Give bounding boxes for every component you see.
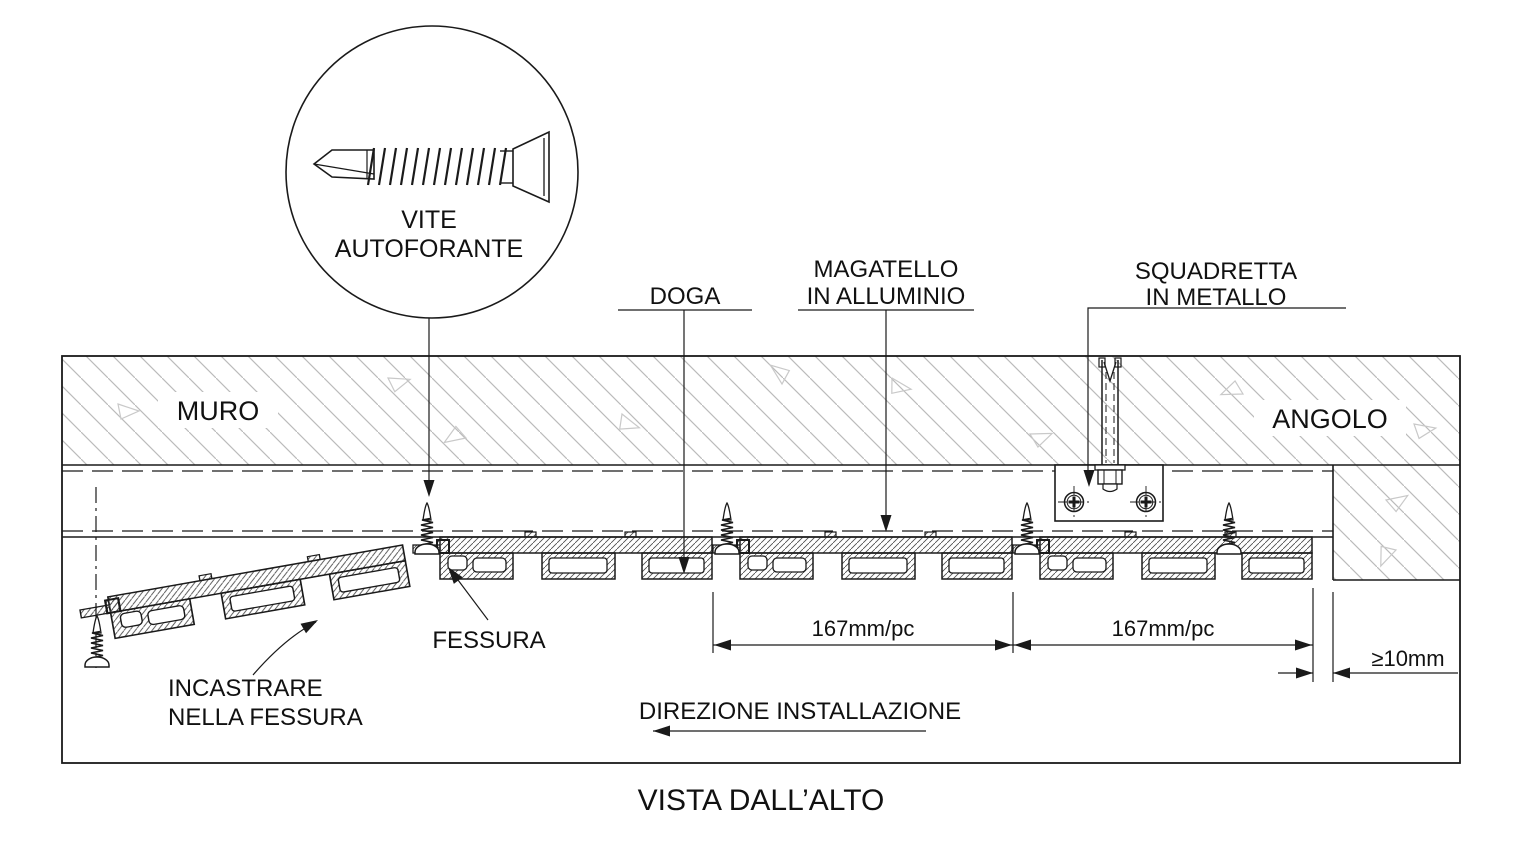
dimension-module-1: 167mm/pc [812, 616, 915, 641]
screw-label-line1: VITE [401, 206, 457, 234]
slat-label: DOGA [650, 283, 721, 310]
doga-tilted-insert [78, 540, 410, 643]
batten-label-line2: IN ALLUMINIO [807, 283, 966, 310]
doga-module-3 [1013, 532, 1312, 579]
dimension-edge-gap: ≥10mm [1371, 646, 1444, 671]
metal-bracket [1055, 465, 1163, 521]
screw-joint-1 [415, 503, 439, 554]
doga-row [413, 532, 1312, 579]
bracket-label-line2: IN METALLO [1146, 284, 1287, 311]
screw-joint-3 [1015, 503, 1039, 554]
slot-label: FESSURA [432, 627, 545, 654]
batten-label-line1: MAGATELLO [814, 256, 959, 283]
detail-circle: VITE AUTOFORANTE [286, 26, 578, 318]
doga-module-1 [413, 532, 712, 579]
page-title: VISTA DALL’ALTO [638, 784, 885, 817]
screw-label-line2: AUTOFORANTE [335, 235, 523, 263]
doga-module-2 [713, 532, 1012, 579]
dimension-module-2: 167mm/pc [1112, 616, 1215, 641]
leader-arrowheads [301, 470, 1095, 737]
bracket-label-line1: SQUADRETTA [1135, 258, 1297, 285]
screw-end [1217, 503, 1241, 554]
corner-wall [1333, 465, 1460, 580]
insert-label-line2: NELLA FESSURA [168, 704, 363, 731]
direction-label: DIREZIONE INSTALLAZIONE [639, 698, 961, 725]
diagram-canvas: MURO ANGOLO [0, 0, 1524, 862]
insert-label-line1: INCASTRARE [168, 675, 323, 702]
corner-label: ANGOLO [1272, 404, 1388, 434]
wall-label: MURO [177, 396, 260, 426]
screw-joint-2 [715, 503, 739, 554]
technical-drawing-page: MURO ANGOLO [0, 0, 1524, 862]
screw-loose [85, 616, 109, 667]
